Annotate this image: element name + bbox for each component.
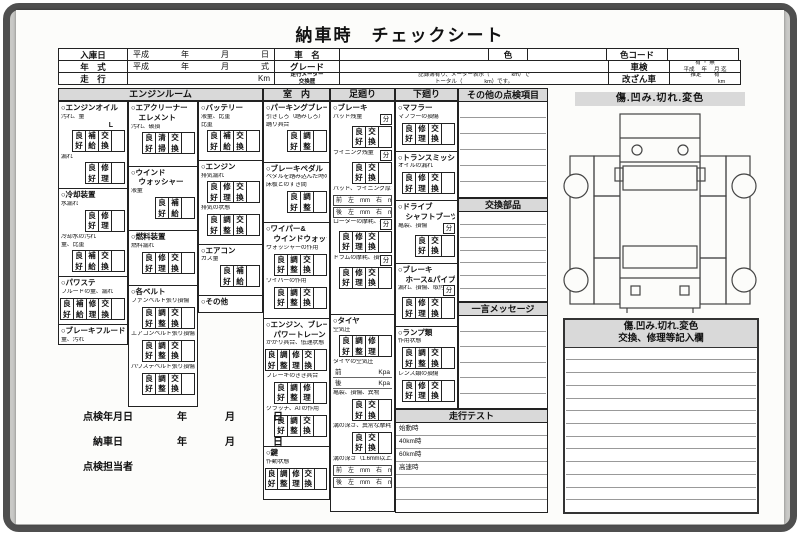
check-cell-blank[interactable] bbox=[441, 380, 455, 402]
item-label-row: 燃料漏れ bbox=[131, 243, 195, 251]
check-row: 良 好修 理 bbox=[61, 162, 125, 184]
item-sublabel: 床板とのすき間 bbox=[266, 182, 327, 190]
check-cell[interactable]: 交 換 bbox=[98, 250, 112, 272]
check-cell[interactable]: 良 好 bbox=[85, 162, 99, 184]
item-label: ガス量 bbox=[201, 256, 218, 264]
item-label-row: オイルの漏れ bbox=[398, 163, 455, 171]
item-label: 液量、比重 bbox=[201, 114, 230, 122]
message-section: 一言メッセージ bbox=[458, 302, 548, 409]
item-label-row: 漏れ bbox=[61, 154, 125, 162]
inspection-section: ○エンジンオイル汚れ、量L良 好補 給交 換漏れ良 好修 理 bbox=[59, 102, 127, 189]
write-in-line[interactable] bbox=[460, 251, 546, 264]
damage-legend-title: 傷.凹み.切れ.変色 bbox=[575, 92, 745, 106]
check-row: 良 好調 整 bbox=[266, 191, 327, 213]
check-cell[interactable]: 良 好 bbox=[207, 130, 221, 152]
road-test-row[interactable]: 60km時 bbox=[396, 449, 547, 462]
item-label-row: かかり具合、低速状態 bbox=[266, 340, 327, 348]
check-cell[interactable]: 良 好 bbox=[72, 250, 86, 272]
replacement-parts-section: 交換部品 bbox=[458, 198, 548, 302]
section-title: ○エアクリーナー bbox=[131, 103, 195, 113]
write-in-line[interactable] bbox=[460, 394, 546, 409]
check-cell[interactable]: 交 換 bbox=[98, 130, 112, 152]
check-cell[interactable]: 良 好 bbox=[402, 123, 416, 145]
section-title: ○パーキングブレーキ bbox=[266, 103, 327, 113]
inspection-section: ○エンジン排気漏れ良 好修 理交 換排気の状態良 好調 整交 換 bbox=[199, 161, 262, 245]
engine-room-column-1: ○エンジンオイル汚れ、量L良 好補 給交 換漏れ良 好修 理○冷却装置水漏れ良 … bbox=[58, 101, 128, 345]
check-cell[interactable]: 補 給 bbox=[73, 298, 87, 320]
check-cell-blank[interactable] bbox=[111, 130, 125, 152]
inspection-section: ○各ベルトファンベルト張り損傷良 好調 整交 換エアコンベルト張り損傷良 好調 … bbox=[129, 286, 197, 406]
column-header-engine-room: エンジンルーム bbox=[58, 88, 263, 101]
inspection-section: ○ウインド ウォッシャー液量良 好補 給 bbox=[129, 167, 197, 232]
section-title: ○エンジン bbox=[201, 162, 260, 172]
check-cell[interactable]: 交 換 bbox=[428, 347, 442, 369]
check-cell[interactable]: 良 好 bbox=[287, 130, 301, 152]
write-in-line[interactable] bbox=[460, 118, 546, 134]
check-cell-blank[interactable] bbox=[313, 287, 327, 309]
write-in-line[interactable] bbox=[460, 378, 546, 394]
minutes-box[interactable]: 分 bbox=[380, 255, 392, 266]
item-label-row: 亀裂、損傷、異物 bbox=[333, 390, 392, 398]
section-title: ○その他 bbox=[201, 297, 260, 307]
other-inspection-title: その他の点検項目 bbox=[459, 89, 547, 102]
check-cell[interactable]: 調 整 bbox=[287, 287, 301, 309]
item-label-row: マフラーの損傷 bbox=[398, 114, 455, 122]
check-cell[interactable]: 交 換 bbox=[168, 132, 182, 154]
item-label-row: 冷却水の汚れ bbox=[61, 234, 125, 242]
section-title: ○エアコン bbox=[201, 246, 260, 256]
measure-row[interactable]: 後 左 mm 右 mm bbox=[333, 477, 392, 488]
replacement-parts-title: 交換部品 bbox=[459, 199, 547, 212]
notes-line[interactable] bbox=[566, 500, 756, 512]
inspection-section: ○パワステフルードの量、漏れ良 好補 給修 理交 換 bbox=[59, 277, 127, 325]
damage-notes-title-line2: 交換、修理等記入欄 bbox=[565, 333, 757, 345]
check-cell[interactable]: 良 好 bbox=[274, 287, 288, 309]
check-row: 良 好修 理交 換 bbox=[398, 172, 455, 194]
check-cell[interactable]: 良 好 bbox=[339, 267, 353, 289]
item-label-row: 排気の状態 bbox=[201, 205, 260, 213]
item-label: ペダルを踏み込んだ時の bbox=[266, 174, 327, 182]
column-header-lower: 下廻り bbox=[395, 88, 458, 101]
write-in-line[interactable] bbox=[460, 225, 546, 238]
write-in-line[interactable] bbox=[460, 332, 546, 348]
check-cell[interactable]: 良 好 bbox=[402, 347, 416, 369]
item-label-row: 亀裂、損傷分 bbox=[398, 223, 455, 234]
check-cell[interactable]: 修 理 bbox=[365, 335, 379, 357]
date-unit: 日 bbox=[254, 433, 302, 448]
check-cell[interactable]: 修 理 bbox=[415, 380, 429, 402]
date-unit: 年 bbox=[158, 433, 206, 448]
notes-line[interactable] bbox=[566, 488, 756, 501]
measure-row[interactable]: 前 左 mm 右 mm bbox=[333, 195, 392, 206]
check-cell-blank[interactable] bbox=[378, 267, 392, 289]
check-cell-blank[interactable] bbox=[181, 197, 195, 219]
check-cell[interactable]: 交 換 bbox=[233, 181, 247, 203]
check-row: 良 好交 換 bbox=[398, 235, 455, 257]
check-cell[interactable]: 交 換 bbox=[365, 267, 379, 289]
item-label-row: ガス量 bbox=[201, 256, 260, 264]
item-label: フルードの量、漏れ bbox=[61, 289, 113, 297]
notes-line[interactable] bbox=[566, 399, 756, 412]
check-cell[interactable]: 補 給 bbox=[85, 250, 99, 272]
check-row: 良 好補 給 bbox=[201, 265, 260, 287]
check-cell[interactable]: 交 換 bbox=[168, 340, 182, 362]
notes-line[interactable] bbox=[566, 437, 756, 450]
check-cell-blank[interactable] bbox=[246, 130, 260, 152]
check-cell-blank[interactable] bbox=[181, 252, 195, 274]
check-cell[interactable]: 良 好 bbox=[339, 231, 353, 253]
section-title: ○パワステ bbox=[61, 278, 125, 288]
item-label-row: パッド、ライニング厚さ bbox=[333, 186, 392, 194]
check-cell[interactable]: 修 理 bbox=[415, 172, 429, 194]
write-in-line[interactable] bbox=[460, 363, 546, 379]
check-cell[interactable]: 調 整 bbox=[220, 214, 234, 236]
minutes-box[interactable]: 分 bbox=[443, 285, 455, 296]
item-sublabel: 踊り具合 bbox=[266, 122, 327, 130]
item-label: オイルの漏れ bbox=[398, 163, 433, 171]
header-table: 入庫日平成 年 月 日車 名色色コード年 式平成 年 月 式グレード車検有 ・ … bbox=[58, 48, 741, 85]
section-title: ○冷却装置 bbox=[61, 190, 125, 200]
section-title: ○ブレーキ bbox=[333, 103, 392, 113]
footer-label: 納車日 bbox=[58, 433, 158, 448]
check-cell-blank[interactable] bbox=[441, 347, 455, 369]
check-cell-blank[interactable] bbox=[246, 181, 260, 203]
footer-row: 納車日年月日 bbox=[58, 433, 368, 448]
check-cell[interactable]: 交 換 bbox=[428, 172, 442, 194]
item-label-row: 排気漏れ bbox=[201, 173, 260, 181]
check-row: 良 好調 整交 換 bbox=[131, 373, 195, 395]
write-in-line[interactable] bbox=[460, 212, 546, 225]
check-cell[interactable]: 交 換 bbox=[300, 254, 314, 276]
item-label-row: 汚れ、量 bbox=[61, 114, 125, 122]
inspection-section: ○エアコンガス量良 好補 給 bbox=[199, 245, 262, 296]
item-label: 液量 bbox=[131, 188, 143, 196]
pressure-unit: Kpa bbox=[378, 378, 390, 388]
item-label-row: 水漏れ bbox=[61, 201, 125, 209]
check-cell[interactable]: 良 好 bbox=[352, 162, 366, 184]
check-cell[interactable]: 良 好 bbox=[352, 126, 366, 148]
section-title: ○トランスミッション bbox=[398, 153, 455, 163]
check-cell[interactable]: 良 好 bbox=[155, 197, 169, 219]
item-label-row: 作用状態 bbox=[398, 338, 455, 346]
check-cell[interactable]: 修 理 bbox=[352, 267, 366, 289]
item-label-row: ファンベルト張り損傷 bbox=[131, 298, 195, 306]
check-cell[interactable]: 交 換 bbox=[428, 380, 442, 402]
section-title: ○ウインド bbox=[131, 168, 195, 178]
road-test-row[interactable] bbox=[396, 488, 547, 501]
axle-label: 後 bbox=[335, 378, 342, 388]
check-cell[interactable]: 良 好 bbox=[142, 252, 156, 274]
item-label: ローターの摩耗、損傷 bbox=[333, 219, 380, 227]
check-cell[interactable]: 補 給 bbox=[168, 197, 182, 219]
header-label-cell: 改ざん車 bbox=[608, 72, 670, 85]
notes-line[interactable] bbox=[566, 373, 756, 386]
write-in-line[interactable] bbox=[460, 347, 546, 363]
notes-line[interactable] bbox=[566, 360, 756, 373]
check-cell-blank[interactable] bbox=[181, 307, 195, 329]
check-cell[interactable]: 交 換 bbox=[168, 252, 182, 274]
check-cell[interactable]: 調 整 bbox=[155, 340, 169, 362]
check-cell[interactable]: 調 整 bbox=[352, 335, 366, 357]
notes-line[interactable] bbox=[566, 475, 756, 488]
item-label: パッド、ライニング厚さ bbox=[333, 186, 392, 194]
pressure-row[interactable]: 前Kpa bbox=[333, 367, 392, 378]
check-cell[interactable]: 修 理 bbox=[352, 231, 366, 253]
check-cell[interactable]: 修 理 bbox=[300, 382, 314, 404]
item-label: 亀裂、損傷、異物 bbox=[333, 390, 379, 398]
write-in-line[interactable] bbox=[460, 182, 546, 197]
section-title: パワートレーン bbox=[266, 330, 327, 340]
inspection-section: ○ブレーキフルード量、汚れ良 好補 給交 換 bbox=[59, 325, 127, 345]
road-test-row[interactable] bbox=[396, 500, 547, 512]
check-cell[interactable]: 良 好 bbox=[402, 172, 416, 194]
check-cell[interactable]: 良 好 bbox=[402, 297, 416, 319]
road-test-row[interactable]: 始動時 bbox=[396, 423, 547, 436]
inspection-section: ○マフラーマフラーの損傷良 好修 理交 換 bbox=[396, 102, 457, 152]
item-label-row: 空気圧 bbox=[333, 327, 392, 335]
check-cell-blank[interactable] bbox=[313, 382, 327, 404]
check-row: 良 好調 整修 理交 換 bbox=[266, 349, 327, 371]
check-cell[interactable]: 調 整 bbox=[300, 130, 314, 152]
check-cell[interactable]: 良 好 bbox=[142, 307, 156, 329]
road-test-section: 走行テスト 始動時40km時60km時高速時 bbox=[395, 409, 548, 513]
section-title: ○燃料装置 bbox=[131, 232, 195, 242]
check-cell-blank[interactable] bbox=[314, 349, 327, 371]
item-label-row: ドラムの摩耗、損傷分 bbox=[333, 255, 392, 266]
notes-line[interactable] bbox=[566, 411, 756, 424]
check-cell-blank[interactable] bbox=[378, 432, 392, 454]
check-cell[interactable]: 交 換 bbox=[233, 130, 247, 152]
footer-row: 点検年月日年月日 bbox=[58, 408, 368, 423]
write-in-line[interactable] bbox=[460, 276, 546, 289]
check-cell[interactable]: 調 整 bbox=[300, 191, 314, 213]
check-cell[interactable]: 良 好 bbox=[72, 130, 86, 152]
check-cell-blank[interactable] bbox=[441, 123, 455, 145]
check-cell[interactable]: 修 理 bbox=[155, 252, 169, 274]
check-cell-blank[interactable] bbox=[378, 399, 392, 421]
write-in-line[interactable] bbox=[460, 316, 546, 332]
damage-notes-title-line1: 傷.凹み.切れ.変色 bbox=[565, 321, 757, 333]
footer-row: 点検担当者 bbox=[58, 458, 368, 473]
check-row: 良 好修 理交 換 bbox=[333, 231, 392, 253]
check-cell-blank[interactable] bbox=[378, 126, 392, 148]
header-label-cell: 走行メーター 交換歴 bbox=[274, 72, 340, 85]
check-cell[interactable]: 調 整 bbox=[155, 307, 169, 329]
check-cell[interactable]: 補 給 bbox=[85, 130, 99, 152]
header-value-cell[interactable]: 推定 有 km bbox=[669, 72, 741, 85]
check-cell[interactable]: 修 理 bbox=[220, 181, 234, 203]
check-cell[interactable]: 修 理 bbox=[415, 297, 429, 319]
item-label-row: パワステベルト張り損傷 bbox=[131, 364, 195, 372]
check-cell[interactable]: 良 好 bbox=[207, 181, 221, 203]
inspection-section: ○ブレーキペダルペダルを踏み込んだ時の床板とのすき間良 好調 整 bbox=[264, 163, 329, 224]
road-test-row[interactable] bbox=[396, 475, 547, 488]
check-cell[interactable]: 交 換 bbox=[428, 123, 442, 145]
section-title: シャフトブーツ bbox=[398, 212, 455, 222]
item-label-row: ブレーキのきき具合 bbox=[266, 373, 327, 381]
check-cell-blank[interactable] bbox=[181, 373, 195, 395]
road-test-row[interactable]: 40km時 bbox=[396, 436, 547, 449]
section-title: ウォッシャー bbox=[131, 177, 195, 187]
write-in-line[interactable] bbox=[460, 166, 546, 182]
check-cell[interactable]: 交 換 bbox=[168, 373, 182, 395]
section-title: ○ブレーキ bbox=[398, 265, 455, 275]
write-in-line[interactable] bbox=[460, 238, 546, 251]
check-cell[interactable]: 良 好 bbox=[415, 235, 429, 257]
check-cell-blank[interactable] bbox=[313, 254, 327, 276]
check-cell-blank[interactable] bbox=[378, 162, 392, 184]
minutes-box[interactable]: 分 bbox=[380, 150, 392, 161]
check-row: 良 好修 理交 換 bbox=[333, 267, 392, 289]
check-cell-blank[interactable] bbox=[111, 298, 125, 320]
check-cell[interactable]: 交 換 bbox=[233, 214, 247, 236]
inspection-section: ○ドライブ シャフトブーツ亀裂、損傷分良 好交 換 bbox=[396, 201, 457, 264]
check-cell[interactable]: 調 整 bbox=[287, 382, 301, 404]
section-title: ○マフラー bbox=[398, 103, 455, 113]
write-in-line[interactable] bbox=[460, 289, 546, 301]
notes-line[interactable] bbox=[566, 449, 756, 462]
header-value-cell[interactable]: Km bbox=[127, 72, 275, 85]
inspection-section: ○ワイパー& ウインドウォッシャーウォッシャーの作用良 好調 整交 換ワイパーの… bbox=[264, 223, 329, 318]
car-diagram bbox=[561, 108, 759, 314]
check-cell[interactable]: 交 換 bbox=[98, 298, 112, 320]
item-label: 汚れ、破損 bbox=[131, 124, 160, 132]
check-cell[interactable]: 良 好 bbox=[60, 298, 74, 320]
check-cell-blank[interactable] bbox=[313, 191, 327, 213]
check-cell[interactable]: 交 換 bbox=[365, 126, 379, 148]
check-cell-blank[interactable] bbox=[246, 214, 260, 236]
check-cell[interactable]: 良 好 bbox=[402, 380, 416, 402]
road-test-row[interactable]: 高速時 bbox=[396, 462, 547, 475]
check-row: 良 好調 整交 換 bbox=[201, 214, 260, 236]
check-cell[interactable]: 補 給 bbox=[233, 265, 247, 287]
check-cell-blank[interactable] bbox=[111, 250, 125, 272]
item-label: ウォッシャーの作用 bbox=[266, 245, 318, 253]
check-row: 良 好調 整交 換 bbox=[266, 254, 327, 276]
check-cell[interactable]: 交 換 bbox=[168, 307, 182, 329]
check-cell[interactable]: 修 理 bbox=[98, 162, 112, 184]
check-cell[interactable]: 良 好 bbox=[142, 132, 156, 154]
column-header-suspension: 足廻り bbox=[330, 88, 395, 101]
footer-label: 点検年月日 bbox=[58, 408, 158, 423]
item-label: ブレーキのきき具合 bbox=[266, 373, 318, 381]
check-cell-blank[interactable] bbox=[181, 340, 195, 362]
inspection-section: ○トランスミッションオイルの漏れ良 好修 理交 換 bbox=[396, 152, 457, 202]
item-label-row: 量、汚れ bbox=[61, 337, 125, 345]
check-cell[interactable]: 交 換 bbox=[300, 287, 314, 309]
pressure-unit: Kpa bbox=[378, 367, 390, 377]
item-label: 排気の状態 bbox=[201, 205, 230, 213]
header-label-cell: 走 行 bbox=[58, 72, 128, 85]
check-cell-blank[interactable] bbox=[111, 162, 125, 184]
item-label: かかり具合、低速状態 bbox=[266, 340, 324, 348]
item-label-row: タイヤの空気圧 bbox=[333, 359, 392, 367]
write-in-line[interactable] bbox=[460, 134, 546, 150]
check-cell[interactable]: 交 換 bbox=[365, 231, 379, 253]
minutes-box[interactable]: 分 bbox=[380, 219, 392, 230]
check-cell[interactable]: 修 理 bbox=[98, 210, 112, 232]
notes-line[interactable] bbox=[566, 424, 756, 437]
check-cell-blank[interactable] bbox=[111, 210, 125, 232]
check-cell[interactable]: 良 好 bbox=[142, 340, 156, 362]
pressure-row[interactable]: 後Kpa bbox=[333, 378, 392, 389]
check-cell-blank[interactable] bbox=[246, 265, 260, 287]
write-in-line[interactable] bbox=[460, 263, 546, 276]
section-title: ウインドウォッシャー bbox=[266, 234, 327, 244]
check-cell[interactable]: 交 換 bbox=[428, 235, 442, 257]
check-cell[interactable]: 良 好 bbox=[142, 373, 156, 395]
check-cell[interactable]: 修 理 bbox=[86, 298, 100, 320]
check-row: 良 好補 給修 理交 換 bbox=[61, 298, 125, 320]
check-row: 良 好修 理交 換 bbox=[398, 297, 455, 319]
minutes-box[interactable]: 分 bbox=[380, 114, 392, 125]
check-cell-blank[interactable] bbox=[441, 172, 455, 194]
measure-row[interactable]: 後 左 mm 右 mm bbox=[333, 207, 392, 218]
check-cell-blank[interactable] bbox=[313, 130, 327, 152]
check-row: 良 好補 給交 換 bbox=[61, 130, 125, 152]
check-cell-blank[interactable] bbox=[441, 235, 455, 257]
check-cell[interactable]: 修 理 bbox=[415, 123, 429, 145]
check-cell-blank[interactable] bbox=[378, 231, 392, 253]
check-cell[interactable]: 良 好 bbox=[274, 254, 288, 276]
notes-line[interactable] bbox=[566, 462, 756, 475]
check-cell-blank[interactable] bbox=[181, 132, 195, 154]
item-label-row: ライニング残量分 bbox=[333, 150, 392, 161]
item-label: パワステベルト張り損傷 bbox=[131, 364, 195, 372]
check-cell[interactable]: 良 好 bbox=[220, 265, 234, 287]
write-in-line[interactable] bbox=[460, 150, 546, 166]
check-cell[interactable]: 交 換 bbox=[428, 297, 442, 319]
check-cell-blank[interactable] bbox=[441, 297, 455, 319]
check-cell[interactable]: 交 換 bbox=[365, 162, 379, 184]
check-cell[interactable]: 良 好 bbox=[274, 382, 288, 404]
check-row: 良 好補 給 bbox=[131, 197, 195, 219]
damage-notes-title: 傷.凹み.切れ.変色 交換、修理等記入欄 bbox=[565, 320, 757, 348]
check-row: 良 好修 理交 換 bbox=[398, 123, 455, 145]
check-row: 良 好調 整交 換 bbox=[131, 340, 195, 362]
check-cell[interactable]: 良 好 bbox=[287, 191, 301, 213]
damage-notes-section: 傷.凹み.切れ.変色 交換、修理等記入欄 bbox=[563, 318, 759, 514]
item-label-row: フルードの量、漏れ bbox=[61, 289, 125, 297]
check-cell[interactable]: 調 整 bbox=[415, 347, 429, 369]
write-in-line[interactable] bbox=[460, 102, 546, 118]
inspection-section: ○エアクリーナー エレメント汚れ、破損良 好清 掃交 換 bbox=[129, 102, 197, 167]
check-cell[interactable]: 良 好 bbox=[207, 214, 221, 236]
notes-line[interactable] bbox=[566, 348, 756, 361]
minutes-box[interactable]: 分 bbox=[443, 223, 455, 234]
item-label: ライニング残量 bbox=[333, 150, 374, 158]
check-cell[interactable]: 清 掃 bbox=[155, 132, 169, 154]
check-row: 良 好清 掃交 換 bbox=[131, 132, 195, 154]
item-label: エアコンベルト張り損傷 bbox=[131, 331, 195, 339]
check-cell[interactable]: 良 好 bbox=[339, 335, 353, 357]
item-sublabel: 比重 bbox=[201, 122, 260, 130]
check-cell[interactable]: 補 給 bbox=[220, 130, 234, 152]
check-row: 良 好補 給交 換 bbox=[61, 250, 125, 272]
check-cell[interactable]: 良 好 bbox=[85, 210, 99, 232]
inspection-section: ○ブレーキパッド残量分良 好交 換ライニング残量分良 好交 換パッド、ライニング… bbox=[331, 102, 394, 315]
date-unit: 年 bbox=[158, 408, 206, 423]
notes-line[interactable] bbox=[566, 386, 756, 399]
inspection-section: ○バッテリー液量、比重比重良 好補 給交 換 bbox=[199, 102, 262, 161]
check-row: 良 好修 理交 換 bbox=[201, 181, 260, 203]
item-label: 引きしろ（踏みしろ） bbox=[266, 114, 324, 122]
check-cell[interactable]: 調 整 bbox=[155, 373, 169, 395]
header-value-cell[interactable]: 記録簿有り、メーター表示（ km）で トータル（ km）です。 bbox=[339, 72, 609, 85]
section-title: ホース&パイプ bbox=[398, 275, 455, 285]
check-cell-blank[interactable] bbox=[378, 335, 392, 357]
check-cell[interactable]: 調 整 bbox=[287, 254, 301, 276]
